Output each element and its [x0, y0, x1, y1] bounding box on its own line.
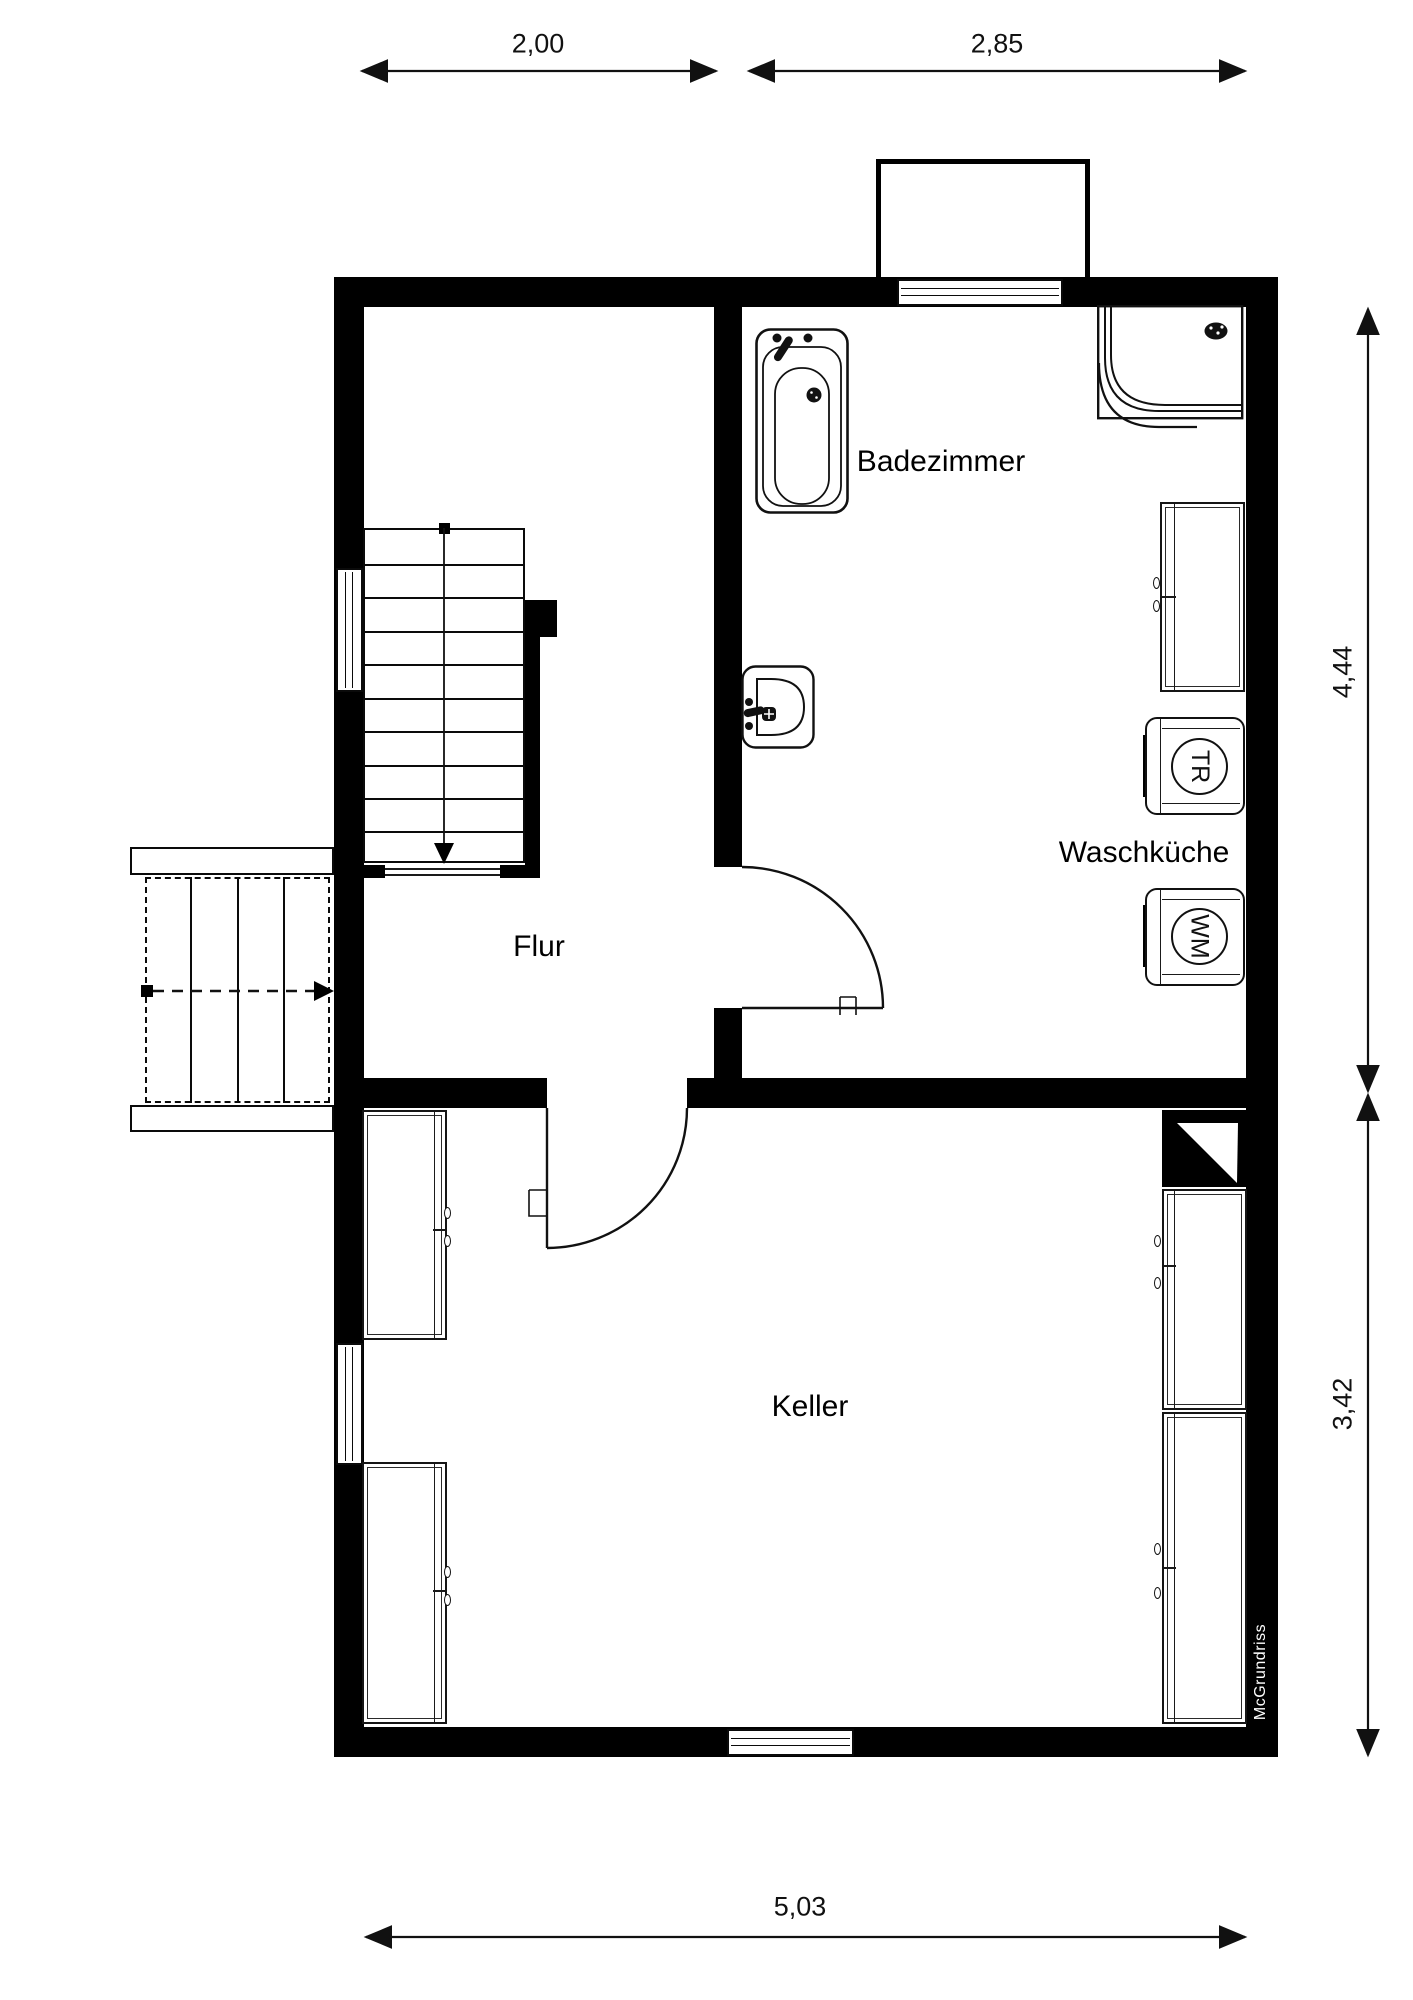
dimension-label-top-left: 2,00	[512, 29, 565, 60]
dimension-label-top-right: 2,85	[971, 29, 1024, 60]
room-label-flur: Flur	[513, 930, 565, 964]
dimension-label-bottom: 5,03	[774, 1892, 827, 1923]
annotation-layer	[0, 0, 1413, 2000]
watermark-text: McGrundriss	[1252, 1624, 1270, 1720]
door-bathroom-icon	[742, 867, 883, 1015]
room-label-waschkueche: Waschküche	[1059, 836, 1230, 870]
stair-direction-arrow	[434, 523, 454, 864]
dimension-label-right-upper: 4,44	[1328, 646, 1359, 699]
floor-plan: TR WM	[0, 0, 1413, 2000]
exterior-stair-direction-arrow	[141, 981, 334, 1001]
room-label-keller: Keller	[772, 1390, 849, 1424]
dimension-label-right-lower: 3,42	[1328, 1378, 1359, 1431]
room-label-badezimmer: Badezimmer	[857, 445, 1025, 479]
door-keller-icon	[529, 1108, 687, 1248]
